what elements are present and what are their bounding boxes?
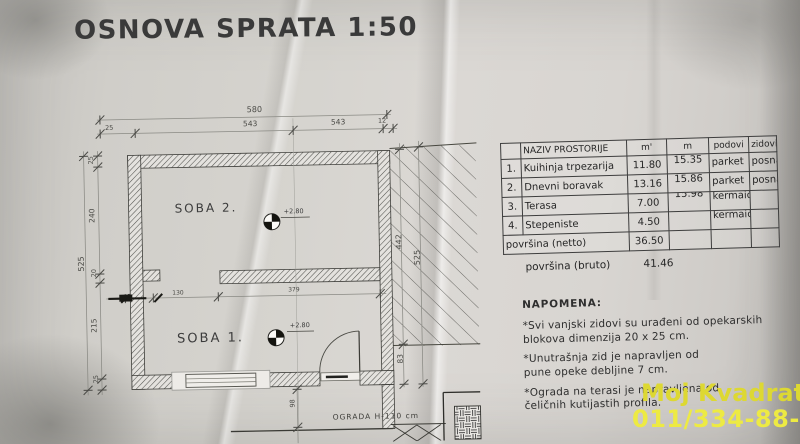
dimension-label: 25 xyxy=(92,375,100,383)
window xyxy=(172,370,270,390)
cell-walls-header: zidovi xyxy=(748,136,776,153)
terrace-railing xyxy=(231,423,446,444)
cell-m-header: m xyxy=(666,138,708,155)
cell-m: 15.35 xyxy=(667,154,710,174)
dimension-label: 525 xyxy=(413,250,422,265)
cell-floors: kermaičke xyxy=(710,210,751,230)
note-item: *Unutrašnja zid je napravljen od pune op… xyxy=(523,349,714,381)
cell-num: 2. xyxy=(501,178,522,198)
dimension-label: 525 xyxy=(77,256,86,271)
level-value: +2.80 xyxy=(284,207,304,215)
level-value: +2.80 xyxy=(290,321,310,329)
cell-walls: posna boja xyxy=(749,171,778,191)
dimension-label: 130 xyxy=(172,289,184,296)
cell-num: 1. xyxy=(501,159,522,179)
railing-label: OGRADA H-110 cm xyxy=(333,411,420,422)
watermark-brand: Moj Kvadrat xyxy=(641,379,800,407)
dimension-label: 543 xyxy=(331,117,345,126)
photographed-blueprint: OSNOVA SPRATA 1:50 xyxy=(0,0,800,444)
dimension-label: 442 xyxy=(394,234,403,249)
dimension-label: 12 xyxy=(378,117,386,125)
door xyxy=(319,331,360,381)
watermark-phone: 011/334-88-36 xyxy=(632,405,800,433)
cell-num: 3. xyxy=(502,197,523,217)
cell-num: 4. xyxy=(503,216,524,236)
level-marker-upper xyxy=(264,213,310,230)
room-label-soba2: SOBA 2. xyxy=(174,200,237,215)
dimension-label: 25 xyxy=(87,156,95,164)
cell-m2: 4.50 xyxy=(629,212,670,232)
dimension-label: 20 xyxy=(90,269,98,277)
level-marker-lower xyxy=(268,329,314,346)
dimension-label: 25 xyxy=(105,124,113,132)
cell-m2: 11.80 xyxy=(627,155,668,175)
cell-walls xyxy=(750,190,779,210)
cell-floors: parket xyxy=(709,153,750,173)
walls xyxy=(128,150,395,433)
dimension-label: 83 xyxy=(396,354,405,364)
cell-walls xyxy=(750,209,779,229)
room-schedule-table: NAZIV PROSTORIJE m' m podovi zidovi 1. K… xyxy=(500,135,780,274)
cell-m: 15.86 xyxy=(667,173,710,193)
bruto-value: 41.46 xyxy=(643,257,673,270)
cell-floors-header: podovi xyxy=(708,137,748,154)
cell-m xyxy=(668,211,711,231)
netto-label: površina (netto) xyxy=(503,232,629,255)
cell-walls: posna boja xyxy=(749,152,778,172)
dimension-label: 215 xyxy=(89,318,98,332)
dimension-label: 98 xyxy=(288,399,296,407)
cell-m2-header: m' xyxy=(626,139,666,156)
cell-m2: 7.00 xyxy=(628,193,669,213)
cell-m: 15.98 xyxy=(668,192,711,212)
cell-floors: kermaičke pločice xyxy=(710,191,751,211)
column-detail xyxy=(443,392,481,441)
note-item: *Svi vanjski zidovi su urađeni od opekar… xyxy=(523,314,780,348)
dimension-label: 240 xyxy=(87,208,96,222)
room-label-soba1: SOBA 1. xyxy=(177,330,244,346)
cell-floors: parket xyxy=(709,172,750,192)
dimension-label: 580 xyxy=(247,105,262,114)
dimension-label: 543 xyxy=(243,119,257,128)
dimension-label: 379 xyxy=(288,286,300,293)
cell-num-header xyxy=(501,143,521,160)
cell-m2: 13.16 xyxy=(627,174,668,194)
netto-value: 36.50 xyxy=(629,231,670,251)
